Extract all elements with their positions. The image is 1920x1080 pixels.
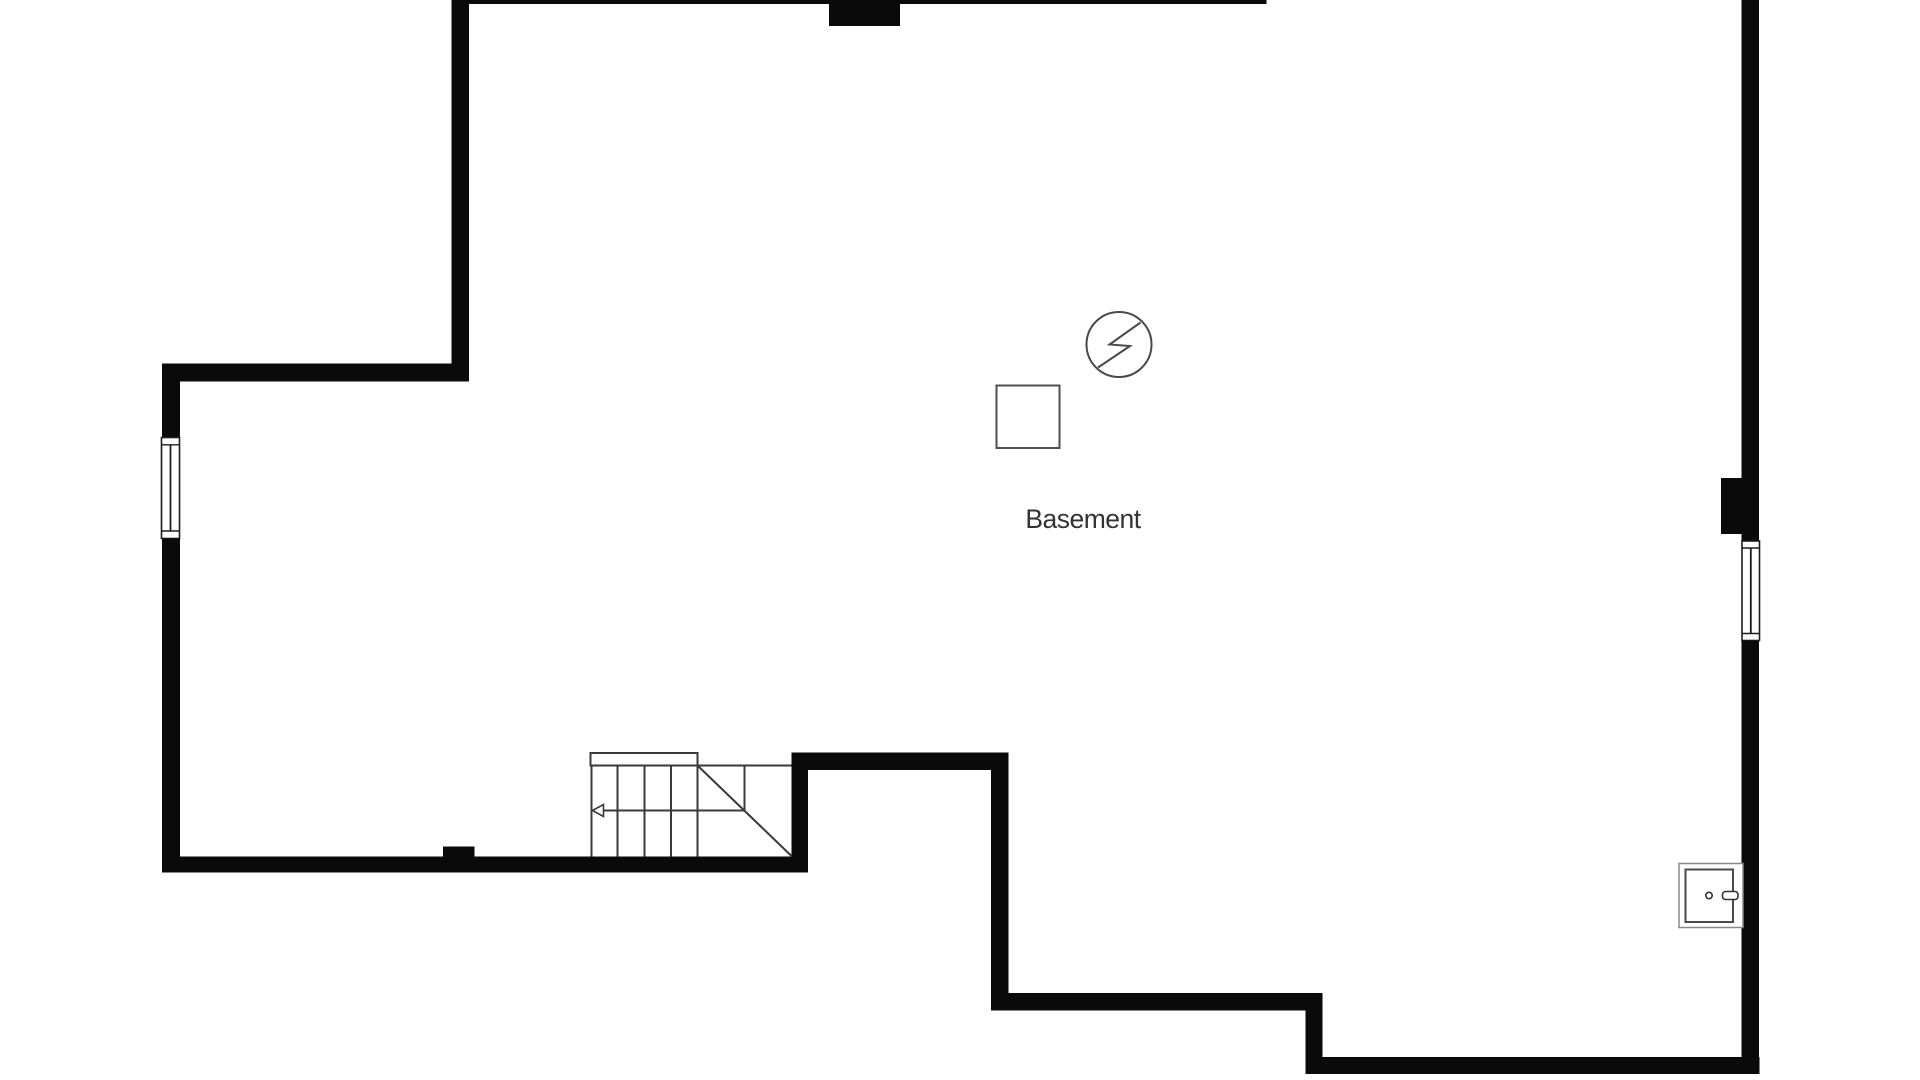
svg-text:Basement: Basement — [1025, 504, 1141, 534]
